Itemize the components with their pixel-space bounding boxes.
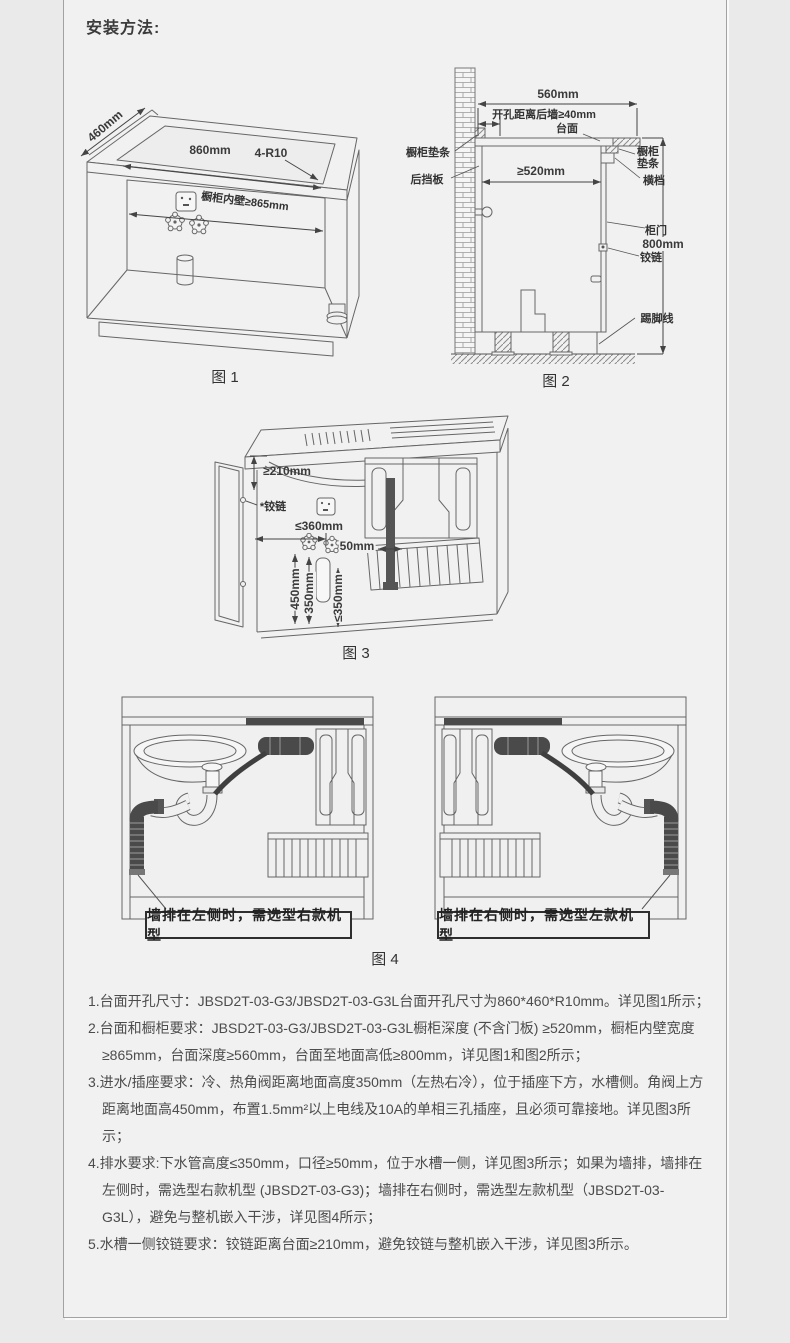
drain-stub-icon [177, 255, 193, 285]
installation-notes: 1.台面开孔尺寸：JBSD2T-03-G3/JBSD2T-03-G3L台面开孔尺… [88, 988, 710, 1258]
hinge-icon [241, 498, 246, 503]
crossbar-block [601, 153, 614, 163]
left-panel-wall-drain-left [122, 697, 373, 919]
label-pad-right: 橱柜 垫条 [637, 146, 659, 170]
label-door: 柜门 [645, 222, 667, 238]
right-panel-wall-drain-right [435, 697, 686, 919]
label-skirting: 踢脚线 [641, 310, 674, 326]
dim-drain-height-350: ≤350mm [331, 573, 345, 623]
figure1-drawing [75, 98, 405, 363]
back-board [475, 146, 482, 332]
label-pad-left: 橱柜垫条 [406, 144, 450, 160]
pad-left-block [475, 128, 485, 138]
dim-hole-offset-40: 开孔距离后墙≥40mm [492, 106, 596, 122]
dim-height-800: 800mm [641, 237, 684, 251]
note-item-1: 1.台面开孔尺寸：JBSD2T-03-G3/JBSD2T-03-G3L台面开孔尺… [88, 988, 710, 1015]
valve-icon [301, 533, 317, 549]
dim-top-width-560: 560mm [537, 87, 578, 101]
dim-width-860: 860mm [189, 143, 230, 157]
wall-valve-icon [482, 207, 492, 217]
drain-pipe [386, 478, 395, 586]
cabinet-door [601, 146, 606, 332]
dim-corner-radius: 4-R10 [255, 146, 288, 160]
figure1-caption: 图 1 [211, 366, 239, 387]
figure3-drawing [205, 412, 525, 662]
basket [268, 833, 368, 877]
installation-instructions-page: 安装方法: [0, 0, 790, 1343]
label-hinge: *铰链 [260, 498, 286, 514]
note-left-box: 墙排在左侧时，需选型右款机型 [145, 911, 352, 939]
figure3-caption: 图 3 [342, 642, 370, 663]
figure-2-side-section: 560mm 开孔距离后墙≥40mm 台面 橱柜垫条 后挡板 ≥520mm 橱柜 … [395, 62, 715, 397]
dim-hinge-offset-210: ≥210mm [263, 464, 311, 478]
dim-socket-360: ≤360mm [294, 519, 344, 533]
dim-depth-520: ≥520mm [517, 164, 565, 178]
pump [258, 737, 314, 755]
figure-3-open-cabinet: ≥210mm *铰链 ≤360mm 50mm 450mm 350mm ≤350m… [205, 412, 525, 662]
figure-1-cabinet-cutout: 460mm 860mm 4-R10 橱柜内壁≥865mm [75, 98, 405, 363]
dishwasher-unit [365, 458, 477, 538]
valve-icon [190, 215, 209, 234]
socket-icon [176, 192, 196, 211]
socket-icon [317, 498, 335, 515]
dim-valve-height-450: 450mm [288, 567, 302, 610]
note-item-5: 5.水槽一侧铰链要求：铰链距离台面≥210mm，避免铰链与整机嵌入干涉，详见图3… [88, 1231, 710, 1258]
label-back-board: 后挡板 [411, 171, 444, 187]
duct [521, 290, 545, 332]
note-item-2: 2.台面和橱柜要求：JBSD2T-03-G3/JBSD2T-03-G3L橱柜深度… [88, 1015, 710, 1069]
pad-right-block [606, 146, 618, 153]
figure4-caption: 图 4 [371, 948, 399, 969]
label-countertop: 台面 [556, 120, 578, 136]
figure-4-plumbing-options: 墙排在左侧时，需选型右款机型 墙排在右侧时，需选型左款机型 [118, 695, 690, 975]
dim-inlet-height-350: 350mm [302, 571, 316, 614]
figure2-caption: 图 2 [542, 370, 570, 391]
door-handle [591, 276, 601, 282]
valve-icon [166, 212, 185, 231]
label-crossbar: 横档 [643, 172, 665, 188]
hinge-icon [241, 582, 246, 587]
note-item-4: 4.排水要求:下水管高度≤350mm，口径≥50mm，位于水槽一侧，详见图3所示… [88, 1150, 710, 1231]
ground-hatch [451, 354, 635, 364]
countertop-strip [246, 718, 364, 725]
label-hinge: 铰链 [640, 249, 662, 265]
dishwasher-tank [316, 729, 366, 825]
brick-wall [455, 68, 475, 354]
down-pipe [316, 558, 330, 602]
dim-pipe-50: 50mm [339, 539, 376, 553]
page-title: 安装方法: [86, 14, 160, 38]
note-item-3: 3.进水/插座要求：冷、热角阀距离地面高度350mm（左热右冷），位于插座下方，… [88, 1069, 710, 1150]
figure4-drawing [118, 695, 690, 925]
note-right-box: 墙排在右侧时，需选型左款机型 [437, 911, 650, 939]
